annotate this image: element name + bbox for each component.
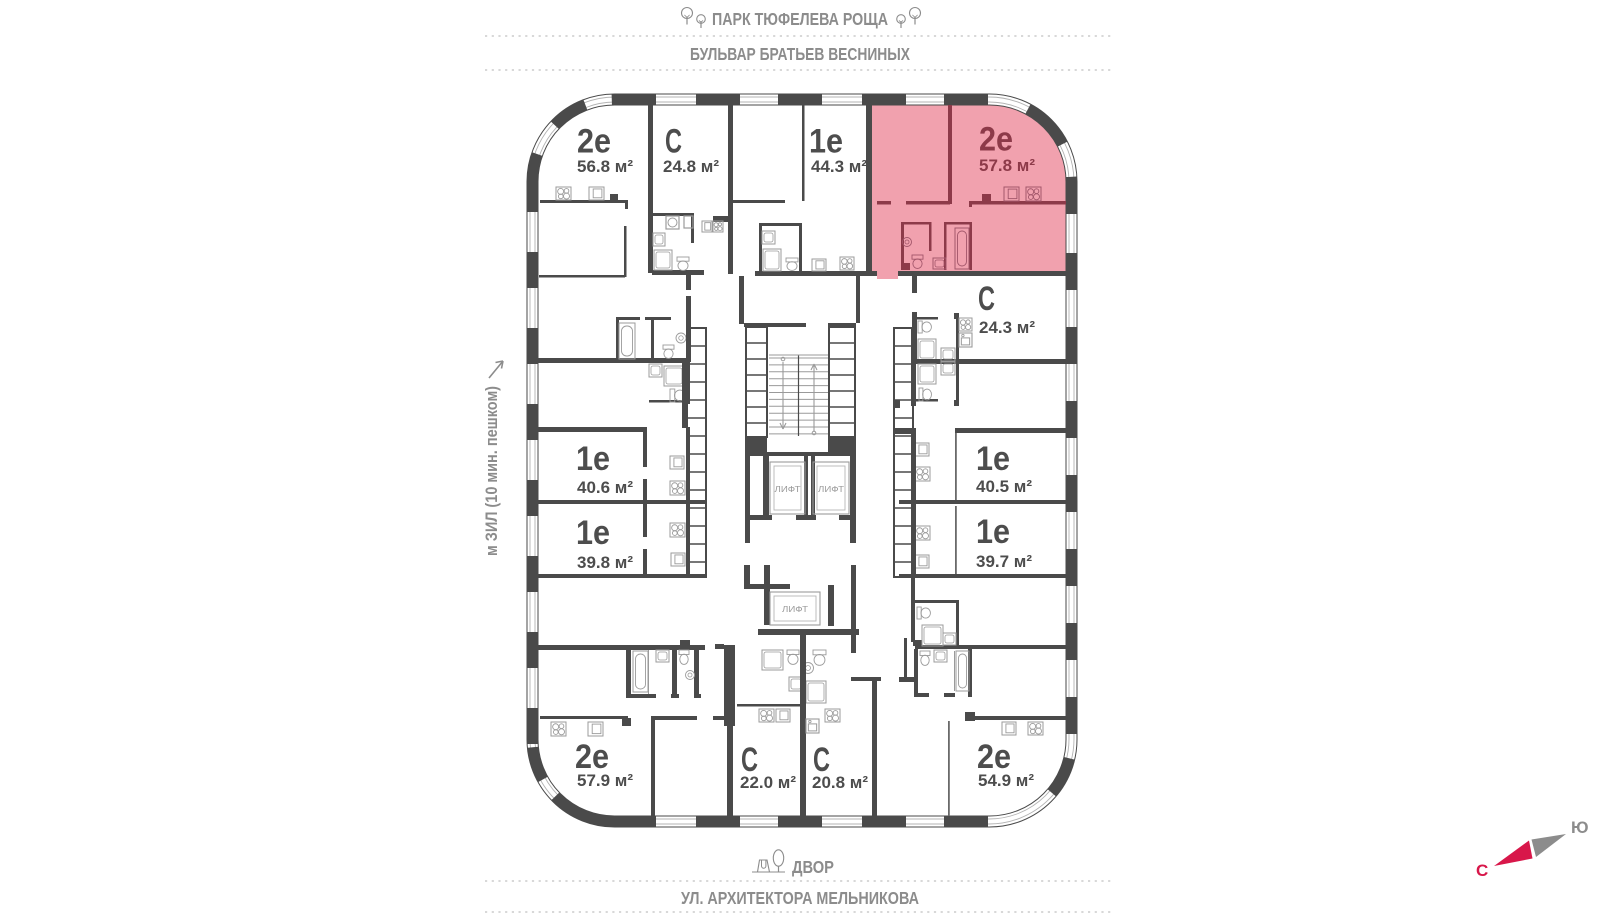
svg-text:57.8 м²: 57.8 м² <box>979 157 1036 175</box>
svg-text:44.3 м²: 44.3 м² <box>811 158 868 176</box>
svg-text:1е: 1е <box>976 440 1010 478</box>
svg-text:БУЛЬВАР БРАТЬЕВ ВЕСНИНЫХ: БУЛЬВАР БРАТЬЕВ ВЕСНИНЫХ <box>690 44 910 64</box>
svg-text:1е: 1е <box>809 123 843 161</box>
svg-text:2е: 2е <box>575 738 609 776</box>
svg-text:ДВОР: ДВОР <box>792 857 834 877</box>
svg-text:ЛИФТ: ЛИФТ <box>818 484 844 494</box>
svg-text:2е: 2е <box>979 121 1013 159</box>
svg-text:2е: 2е <box>977 738 1011 776</box>
svg-text:24.8 м²: 24.8 м² <box>663 158 720 176</box>
svg-text:24.3 м²: 24.3 м² <box>979 319 1036 337</box>
svg-text:39.8 м²: 39.8 м² <box>577 554 634 572</box>
svg-text:С: С <box>665 123 682 161</box>
svg-text:м ЗИЛ (10 мин. пешком): м ЗИЛ (10 мин. пешком) <box>482 386 501 556</box>
svg-text:39.7 м²: 39.7 м² <box>976 553 1033 571</box>
svg-text:УЛ. АРХИТЕКТОРА МЕЛЬНИКОВА: УЛ. АРХИТЕКТОРА МЕЛЬНИКОВА <box>681 888 919 908</box>
svg-text:ЛИФТ: ЛИФТ <box>782 604 808 614</box>
svg-text:22.0 м²: 22.0 м² <box>740 774 797 792</box>
svg-text:54.9 м²: 54.9 м² <box>978 772 1035 790</box>
svg-text:40.5 м²: 40.5 м² <box>976 478 1033 496</box>
svg-text:1е: 1е <box>576 514 610 552</box>
svg-text:ПАРК ТЮФЕЛЕВА РОЩА: ПАРК ТЮФЕЛЕВА РОЩА <box>712 9 888 29</box>
svg-text:40.6 м²: 40.6 м² <box>577 479 634 497</box>
svg-text:С: С <box>978 280 995 318</box>
svg-text:57.9 м²: 57.9 м² <box>577 772 634 790</box>
svg-text:56.8 м²: 56.8 м² <box>577 158 634 176</box>
svg-text:2е: 2е <box>577 123 611 161</box>
svg-text:С: С <box>1476 861 1488 880</box>
svg-text:1е: 1е <box>576 440 610 478</box>
svg-text:1е: 1е <box>976 513 1010 551</box>
svg-text:Ю: Ю <box>1571 818 1589 837</box>
svg-text:ЛИФТ: ЛИФТ <box>775 484 801 494</box>
svg-text:20.8 м²: 20.8 м² <box>812 774 869 792</box>
